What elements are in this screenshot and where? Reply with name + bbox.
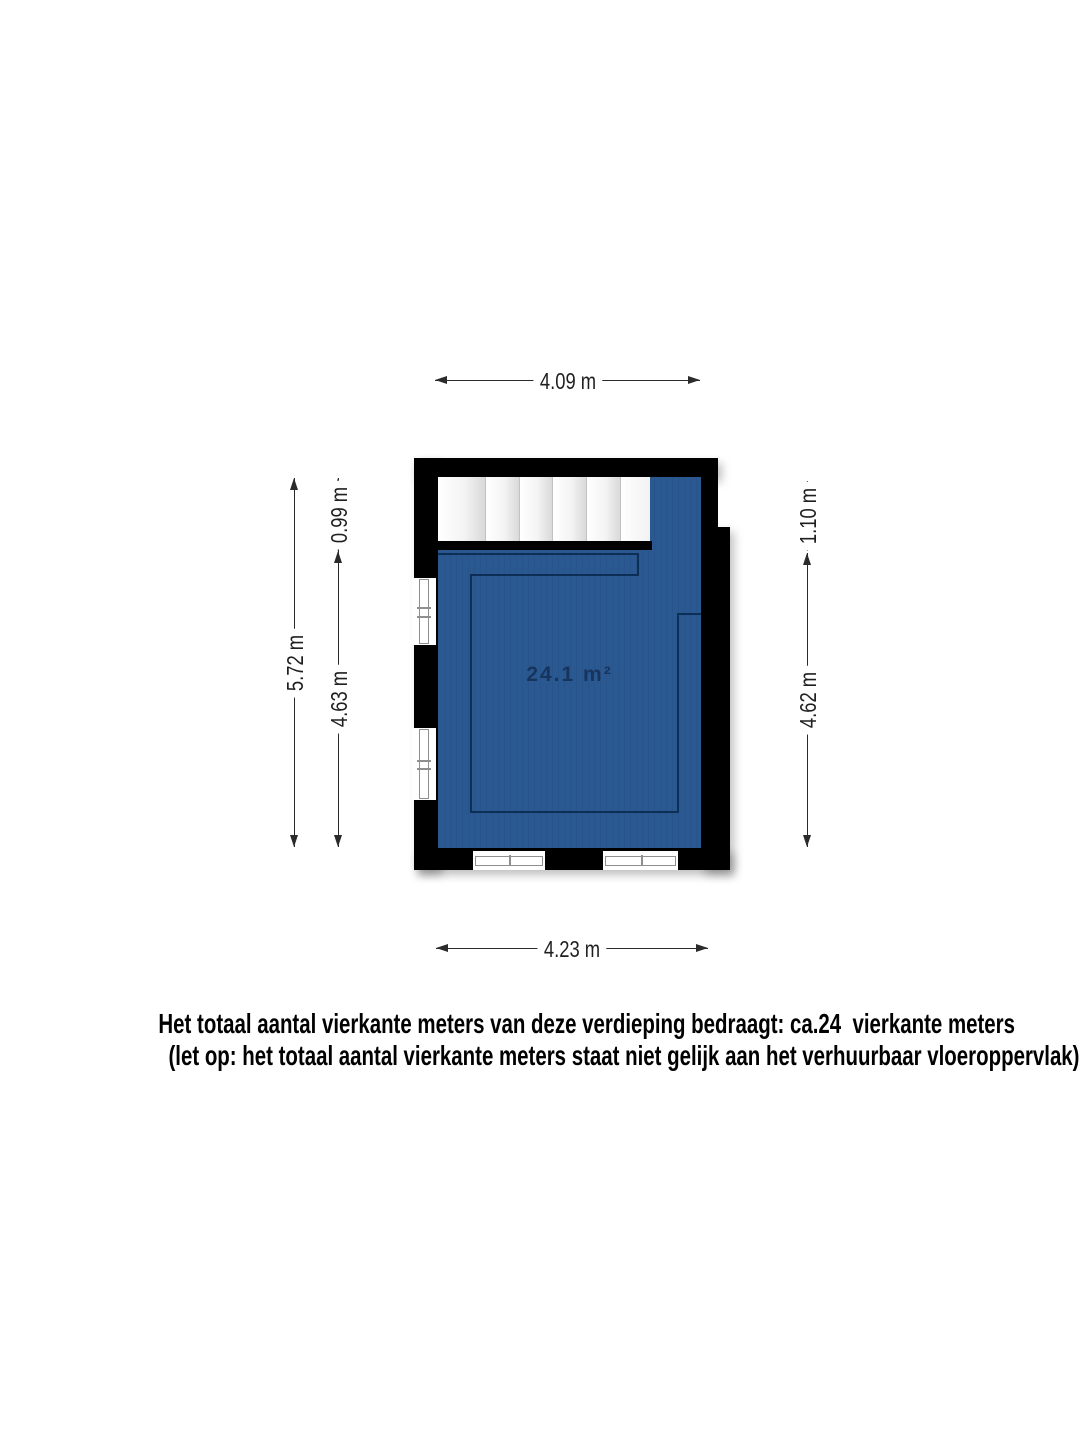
dimension-left-outer: 5.72 m [282, 478, 307, 847]
room-outline-segment [470, 811, 679, 813]
dimension-label: 0.99 m [326, 480, 352, 549]
dimension-left-bottom: 4.63 m [326, 551, 351, 847]
arrowhead-left-icon [436, 944, 448, 952]
dimension-top: 4.09 m [435, 368, 700, 393]
window-left-1 [412, 578, 436, 645]
arrowhead-down-icon [290, 835, 298, 847]
stair-tread [486, 477, 520, 541]
stair-tread [621, 477, 650, 541]
wall-left [414, 458, 438, 870]
window-tick [417, 607, 431, 609]
dimension-label: 4.23 m [537, 936, 606, 962]
arrowhead-down-icon [334, 835, 342, 847]
floorplan: 24.1 m² [0, 0, 1080, 1440]
floorplan-page: 24.1 m² 4.09 m 4.23 m 5.72 m 0.99 m 4.63… [0, 0, 1080, 1440]
dimension-right-bottom: 4.62 m [795, 553, 820, 847]
footer-line2-text: (let op: het totaal aantal vierkante met… [168, 1040, 1079, 1072]
arrowhead-up-icon [290, 478, 298, 490]
room-area-label: 24.1 m² [438, 663, 701, 687]
arrowhead-right-icon [688, 376, 700, 384]
dimension-label: 1.10 m [795, 481, 821, 550]
window-tick [417, 760, 431, 762]
window-tick [509, 855, 511, 866]
dimension-label: 4.09 m [533, 368, 602, 394]
stair-tread [438, 477, 486, 541]
room-outline-segment [637, 553, 639, 576]
dimension-label: 4.62 m [795, 665, 821, 734]
room-outline-segment [677, 613, 679, 813]
window-bottom-1 [473, 851, 545, 870]
room-outline-segment [438, 553, 639, 555]
wall-right-upper [701, 458, 718, 527]
arrowhead-left-icon [435, 376, 447, 384]
stair-tread [553, 477, 587, 541]
window-bottom-2 [603, 851, 678, 870]
dimension-left-top: 0.99 m [326, 478, 351, 551]
wall-right-lower [701, 527, 730, 870]
arrowhead-down-icon [803, 835, 811, 847]
window-left-2 [412, 728, 436, 800]
arrowhead-right-icon [696, 944, 708, 952]
window-tick [417, 616, 431, 618]
stair-tread [520, 477, 554, 541]
wall-top [414, 458, 718, 477]
window-tick [641, 855, 643, 866]
footer-line1-text: Het totaal aantal vierkante meters van d… [158, 1008, 1015, 1040]
arrowhead-up-icon [803, 553, 811, 565]
room-outline-segment [677, 613, 701, 615]
window-glass [419, 579, 429, 644]
room-outline-segment [470, 574, 472, 813]
stair-tread [587, 477, 621, 541]
footer-total-area-text: Het totaal aantal vierkante meters van d… [0, 1008, 1080, 1040]
wall-under-stairs [438, 541, 652, 550]
dimension-right-top: 1.10 m [795, 481, 820, 551]
window-tick [417, 768, 431, 770]
dimension-bottom: 4.23 m [436, 936, 708, 961]
staircase [438, 477, 650, 541]
dimension-label: 4.63 m [326, 664, 352, 733]
wall-bottom [414, 848, 730, 870]
footer-disclaimer-text: (let op: het totaal aantal vierkante met… [0, 1040, 1080, 1072]
window-glass [419, 729, 429, 799]
arrowhead-up-icon [334, 551, 342, 563]
dimension-label: 5.72 m [282, 628, 308, 697]
room-outline-segment [470, 574, 639, 576]
